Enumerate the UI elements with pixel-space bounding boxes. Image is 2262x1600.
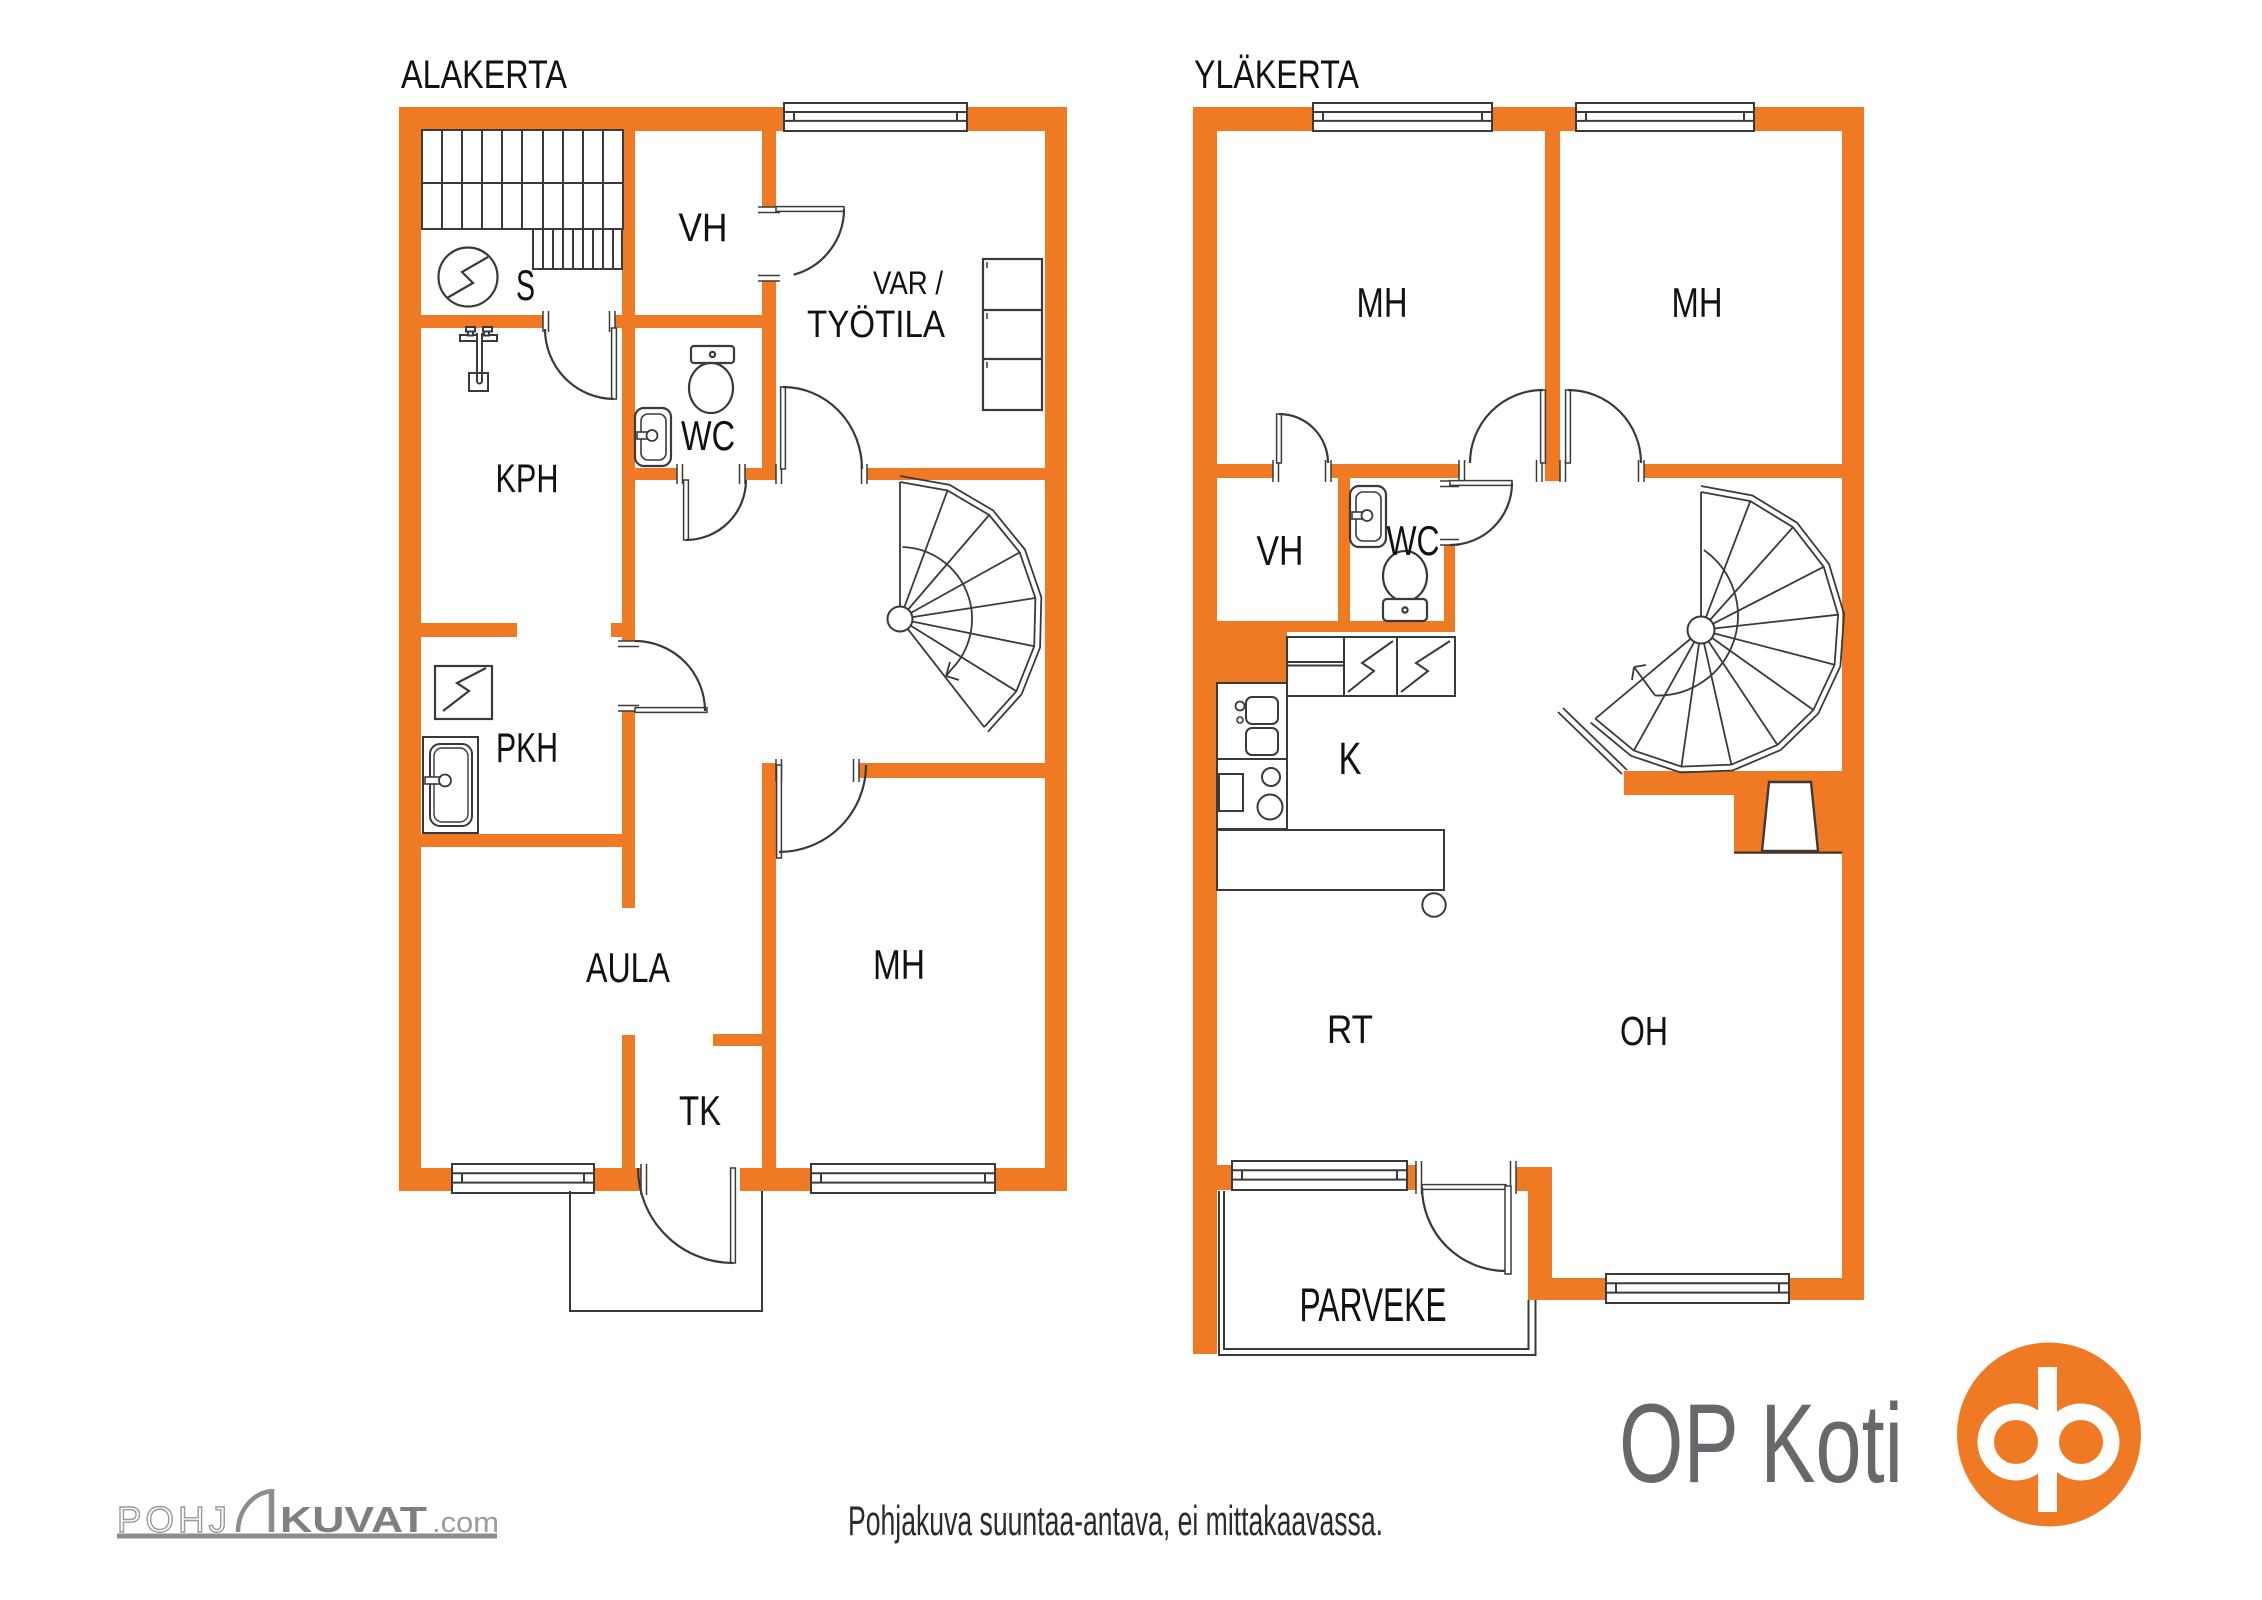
svg-text:MH: MH (873, 941, 925, 988)
svg-text:RT: RT (1327, 1008, 1373, 1052)
svg-text:PKH: PKH (496, 724, 558, 771)
svg-text:S: S (516, 262, 535, 310)
svg-text:Pohjakuva suuntaa-antava, ei m: Pohjakuva suuntaa-antava, ei mittakaavas… (848, 1497, 1383, 1544)
svg-text:VAR /: VAR / (873, 265, 943, 301)
svg-text:OH: OH (1620, 1008, 1668, 1054)
svg-text:WC: WC (1387, 517, 1440, 564)
svg-text:OP Koti: OP Koti (1619, 1381, 1903, 1506)
svg-text:KPH: KPH (496, 457, 559, 501)
svg-text:VH: VH (1257, 527, 1304, 574)
svg-text:ALAKERTA: ALAKERTA (401, 53, 567, 97)
svg-text:AULA: AULA (586, 944, 670, 991)
svg-text:TYÖTILA: TYÖTILA (807, 304, 946, 346)
svg-text:VH: VH (679, 206, 728, 250)
svg-text:PARVEKE: PARVEKE (1300, 1278, 1447, 1331)
svg-text:TK: TK (679, 1087, 721, 1134)
svg-text:MH: MH (1357, 279, 1408, 326)
svg-text:WC: WC (681, 412, 735, 459)
svg-text:YLÄKERTA: YLÄKERTA (1194, 53, 1359, 97)
svg-text:MH: MH (1672, 279, 1723, 326)
svg-text:K: K (1339, 733, 1362, 784)
